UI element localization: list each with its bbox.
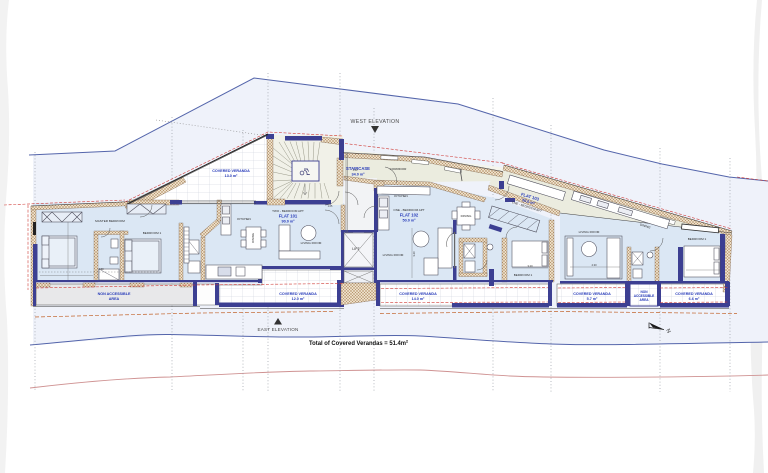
svg-text:AREA: AREA [109, 297, 120, 301]
svg-text:3.20: 3.20 [412, 251, 416, 257]
svg-text:DINING: DINING [251, 233, 255, 243]
svg-text:TWO - BEDROOM APT: TWO - BEDROOM APT [272, 209, 304, 213]
svg-text:STAIRCASE: STAIRCASE [346, 166, 370, 171]
svg-text:COVERED VERANDA: COVERED VERANDA [399, 292, 437, 296]
svg-text:CORRIDOR: CORRIDOR [390, 167, 408, 171]
svg-text:LIVING ROOM: LIVING ROOM [579, 230, 600, 234]
svg-text:90.0 m²: 90.0 m² [281, 220, 295, 224]
svg-text:BEDROOM 1: BEDROOM 1 [143, 231, 162, 235]
svg-text:1.40: 1.40 [353, 169, 358, 172]
svg-text:COVERED VERANDA: COVERED VERANDA [573, 292, 611, 296]
svg-text:13.0 m²: 13.0 m² [225, 174, 238, 178]
svg-text:COVERED VERANDA: COVERED VERANDA [212, 169, 250, 173]
svg-text:FLAT 101: FLAT 101 [279, 214, 298, 219]
svg-text:DINING: DINING [461, 214, 472, 218]
svg-text:4.30: 4.30 [98, 267, 104, 271]
svg-text:ONE - BEDROOM APT: ONE - BEDROOM APT [393, 208, 424, 212]
svg-text:COVERED VERANDA: COVERED VERANDA [279, 292, 317, 296]
svg-text:5.7 m²: 5.7 m² [587, 297, 598, 301]
svg-text:4.30: 4.30 [591, 263, 597, 267]
svg-text:6.6 m²: 6.6 m² [689, 297, 700, 301]
svg-text:WEST ELEVATION: WEST ELEVATION [351, 119, 400, 125]
svg-text:EAST ELEVATION: EAST ELEVATION [257, 327, 298, 332]
svg-text:AREA: AREA [639, 298, 649, 302]
svg-text:BEDROOM 1: BEDROOM 1 [688, 237, 707, 241]
svg-text:FLAT 102: FLAT 102 [400, 213, 419, 218]
svg-text:LIVING ROOM: LIVING ROOM [383, 253, 404, 257]
svg-text:Total of Covered Verandas = 51: Total of Covered Verandas = 51.4m² [309, 340, 409, 347]
svg-text:34.0 m²: 34.0 m² [351, 173, 365, 177]
svg-text:1.05: 1.05 [328, 205, 333, 208]
svg-text:3.20: 3.20 [527, 264, 533, 268]
svg-text:LIVING ROOM: LIVING ROOM [301, 241, 322, 245]
svg-text:NON ACCESSIBLE: NON ACCESSIBLE [98, 292, 131, 296]
svg-text:50.0 m²: 50.0 m² [402, 219, 416, 223]
svg-text:COVERED VERANDA: COVERED VERANDA [675, 292, 713, 296]
svg-text:14.0 m²: 14.0 m² [412, 297, 425, 301]
svg-text:KITCHEN: KITCHEN [394, 194, 408, 198]
svg-text:BEDROOM 1: BEDROOM 1 [514, 273, 533, 277]
svg-text:KITCHEN: KITCHEN [237, 217, 251, 221]
svg-text:MASTER BEDROOM: MASTER BEDROOM [95, 219, 125, 223]
svg-text:12.0 m²: 12.0 m² [292, 297, 305, 301]
svg-text:LIFT: LIFT [352, 247, 360, 251]
